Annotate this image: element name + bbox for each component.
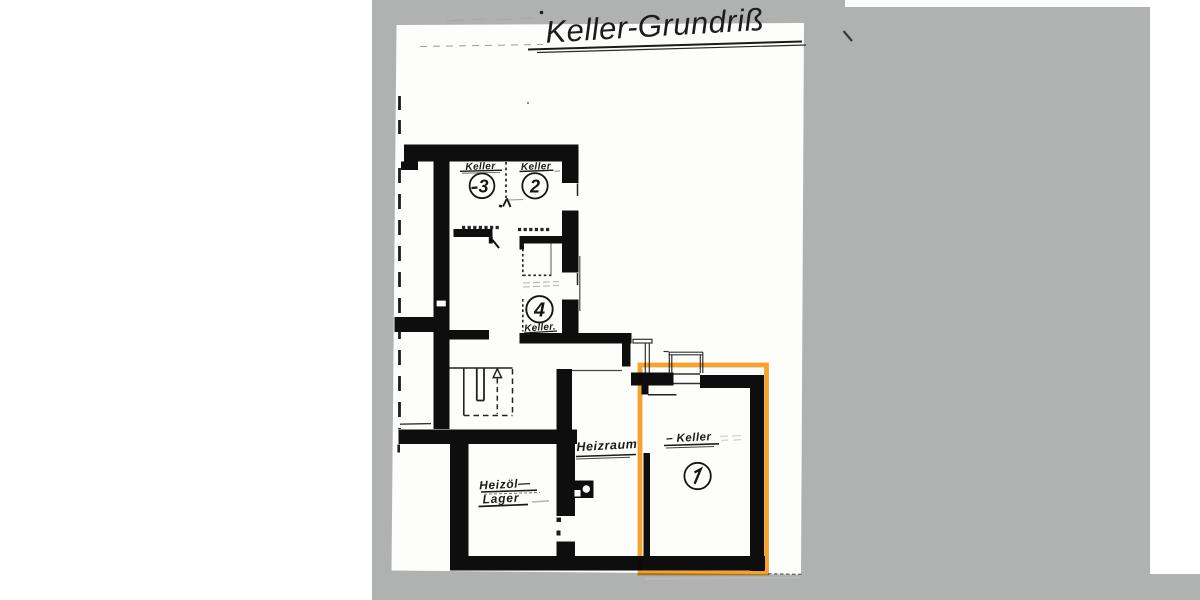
svg-text:Keller: Keller — [676, 431, 712, 445]
svg-text:4: 4 — [533, 300, 545, 322]
svg-text:2: 2 — [529, 177, 540, 197]
svg-text:3: 3 — [478, 177, 488, 197]
svg-text:Lager: Lager — [482, 491, 520, 507]
